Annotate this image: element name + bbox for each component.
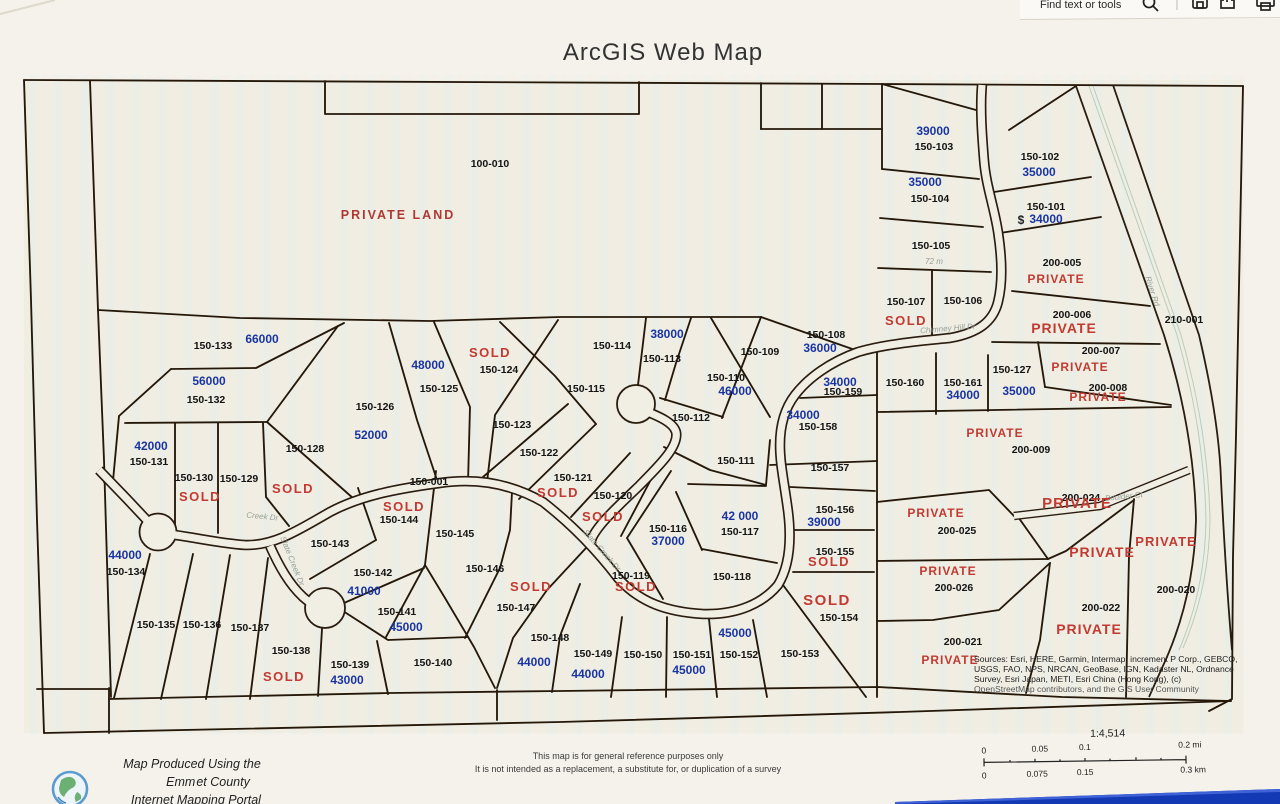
svg-text:0.075: 0.075 [1026,769,1048,779]
svg-text:150-115: 150-115 [567,383,605,395]
svg-text:PRIVATE: PRIVATE [1051,360,1108,374]
svg-text:Internet Mapping Portal: Internet Mapping Portal [131,793,262,804]
svg-text:150-137: 150-137 [231,622,270,634]
svg-text:0.15: 0.15 [1077,767,1094,777]
svg-text:35000: 35000 [908,175,942,189]
svg-text:PRIVATE LAND: PRIVATE LAND [341,208,456,222]
svg-text:100-010: 100-010 [471,158,510,170]
svg-text:150-152: 150-152 [720,649,759,661]
svg-text:150-133: 150-133 [194,340,233,352]
svg-text:43000: 43000 [330,673,364,687]
svg-text:56000: 56000 [192,374,226,388]
svg-text:150-132: 150-132 [187,394,226,406]
svg-text:PRIVATE: PRIVATE [966,426,1023,440]
svg-text:150-120: 150-120 [594,490,633,502]
svg-text:0.2 mi: 0.2 mi [1178,739,1201,749]
svg-text:42 000: 42 000 [722,509,759,523]
svg-text:200-020: 200-020 [1157,584,1196,596]
svg-text:150-135: 150-135 [137,619,176,631]
svg-text:PRIVATE: PRIVATE [1042,495,1112,512]
svg-text:34000: 34000 [823,375,857,389]
svg-text:150-146: 150-146 [466,563,505,575]
svg-text:34000: 34000 [786,408,820,422]
svg-text:150-102: 150-102 [1021,151,1060,163]
svg-text:35000: 35000 [1022,165,1056,179]
svg-text:150-123: 150-123 [493,419,532,431]
svg-text:150-125: 150-125 [420,383,459,395]
svg-text:PRIVATE: PRIVATE [1027,272,1084,286]
svg-text:150-140: 150-140 [414,657,453,669]
svg-text:36000: 36000 [803,341,837,355]
svg-text:SOLD: SOLD [469,345,511,360]
svg-text:150-141: 150-141 [378,606,417,618]
svg-text:150-134: 150-134 [107,566,146,578]
svg-text:39000: 39000 [807,515,841,529]
svg-text:PRIVATE: PRIVATE [1069,390,1126,404]
svg-text:150-108: 150-108 [807,329,846,341]
svg-text:150-157: 150-157 [811,462,850,474]
svg-text:SOLD: SOLD [615,579,657,594]
svg-text:150-121: 150-121 [554,472,593,484]
svg-text:0: 0 [982,770,987,780]
svg-text:This map is for general refere: This map is for general reference purpos… [533,751,724,761]
svg-text:SOLD: SOLD [263,669,305,684]
svg-text:Emmet County: Emmet County [166,775,250,789]
svg-text:USGS, FAO, NPS, NRCAN, GeoBase: USGS, FAO, NPS, NRCAN, GeoBase, IGN, Kad… [974,664,1234,674]
svg-text:OpenStreetMap contributors, an: OpenStreetMap contributors, and the GIS … [974,684,1200,694]
svg-text:150-144: 150-144 [380,514,419,526]
svg-text:200-022: 200-022 [1082,602,1121,614]
svg-text:0.05: 0.05 [1031,744,1048,754]
svg-text:45000: 45000 [718,626,752,640]
svg-text:210-001: 210-001 [1165,314,1204,326]
svg-text:41000: 41000 [347,584,381,598]
svg-text:52000: 52000 [354,428,388,442]
svg-text:44000: 44000 [517,655,551,669]
svg-text:150-111: 150-111 [717,455,755,467]
svg-text:150-106: 150-106 [944,295,983,307]
svg-text:PRIVATE: PRIVATE [921,653,978,667]
svg-text:150-114: 150-114 [593,340,631,352]
svg-text:150-107: 150-107 [887,296,926,308]
svg-text:200-021: 200-021 [944,636,983,648]
svg-text:150-103: 150-103 [915,141,954,153]
svg-text:PRIVATE: PRIVATE [1069,544,1135,560]
svg-text:SOLD: SOLD [272,481,314,496]
svg-text:44000: 44000 [571,667,605,681]
svg-text:34000: 34000 [1029,212,1063,226]
svg-text:150-130: 150-130 [175,472,214,484]
svg-text:48000: 48000 [411,358,445,372]
svg-text:$: $ [1018,213,1025,227]
svg-text:SOLD: SOLD [808,554,850,569]
svg-text:150-126: 150-126 [356,401,395,413]
svg-text:150-136: 150-136 [183,619,222,631]
svg-text:1:4,514: 1:4,514 [1090,727,1125,739]
svg-text:45000: 45000 [389,620,423,634]
svg-text:37000: 37000 [651,534,685,548]
svg-text:PRIVATE: PRIVATE [907,506,964,520]
svg-text:Sources: Esri, HERE, Garmin, I: Sources: Esri, HERE, Garmin, Intermap, i… [974,654,1237,664]
svg-text:42000: 42000 [134,439,168,453]
svg-text:35000: 35000 [1002,384,1036,398]
svg-text:SOLD: SOLD [582,509,624,524]
svg-text:150-110: 150-110 [707,372,745,384]
svg-text:150-145: 150-145 [436,528,475,540]
svg-text:150-153: 150-153 [781,648,820,660]
svg-text:150-109: 150-109 [741,346,780,358]
svg-text:150-131: 150-131 [130,456,169,468]
svg-text:150-118: 150-118 [713,571,751,583]
svg-text:150-104: 150-104 [911,193,950,205]
svg-text:66000: 66000 [245,332,279,346]
svg-text:150-127: 150-127 [993,364,1032,376]
svg-text:Map Produced Using the: Map Produced Using the [123,757,261,771]
svg-text:150-143: 150-143 [311,538,350,550]
svg-text:150-128: 150-128 [286,443,325,455]
svg-text:200-009: 200-009 [1012,444,1051,456]
svg-text:39000: 39000 [916,124,950,138]
svg-text:150-142: 150-142 [354,567,393,579]
svg-text:SOLD: SOLD [179,489,221,504]
svg-text:SOLD: SOLD [383,499,425,514]
svg-text:0.3 km: 0.3 km [1180,764,1206,774]
svg-text:150-122: 150-122 [520,447,559,459]
svg-text:72 m: 72 m [925,257,943,266]
svg-text:150-124: 150-124 [480,364,519,376]
svg-text:200-005: 200-005 [1043,257,1082,269]
svg-text:38000: 38000 [650,327,684,341]
svg-text:0.1: 0.1 [1079,742,1091,752]
svg-text:150-147: 150-147 [497,602,536,614]
svg-text:It is not intended as a replac: It is not intended as a replacement, a s… [475,764,782,774]
svg-text:150-150: 150-150 [624,649,663,661]
svg-text:150-105: 150-105 [912,240,951,252]
svg-text:150-148: 150-148 [531,632,570,644]
svg-text:46000: 46000 [718,384,752,398]
svg-text:150-149: 150-149 [574,648,613,660]
svg-text:45000: 45000 [672,663,706,677]
svg-text:Find text or tools: Find text or tools [1040,0,1122,11]
svg-text:PRIVATE: PRIVATE [1135,534,1196,549]
svg-text:150-117: 150-117 [721,526,759,538]
svg-text:PRIVATE: PRIVATE [919,564,976,578]
svg-text:150-139: 150-139 [331,659,370,671]
svg-text:150-129: 150-129 [220,473,259,485]
svg-text:SOLD: SOLD [537,485,579,500]
svg-text:SOLD: SOLD [803,592,851,609]
svg-text:SOLD: SOLD [885,313,927,328]
svg-text:PRIVATE: PRIVATE [1031,320,1097,336]
svg-text:200-007: 200-007 [1082,345,1121,357]
svg-text:150-001: 150-001 [410,476,449,488]
svg-text:ArcGIS Web Map: ArcGIS Web Map [563,39,763,66]
svg-text:PRIVATE: PRIVATE [1056,621,1122,637]
svg-text:44000: 44000 [108,548,142,562]
svg-text:150-160: 150-160 [886,377,925,389]
svg-text:150-112: 150-112 [672,412,710,424]
svg-text:150-151: 150-151 [673,649,712,661]
svg-text:150-113: 150-113 [643,353,681,365]
svg-text:0: 0 [981,745,986,755]
svg-text:150-138: 150-138 [272,645,311,657]
svg-text:200-026: 200-026 [935,582,974,594]
svg-text:200-025: 200-025 [938,525,977,537]
svg-text:150-158: 150-158 [799,421,838,433]
svg-text:Survey, Esri Japan, METI,: Survey, Esri Japan, METI, Esri China (Ho… [974,674,1181,684]
svg-text:SOLD: SOLD [510,579,552,594]
svg-text:150-154: 150-154 [820,612,859,624]
svg-text:34000: 34000 [946,388,980,402]
